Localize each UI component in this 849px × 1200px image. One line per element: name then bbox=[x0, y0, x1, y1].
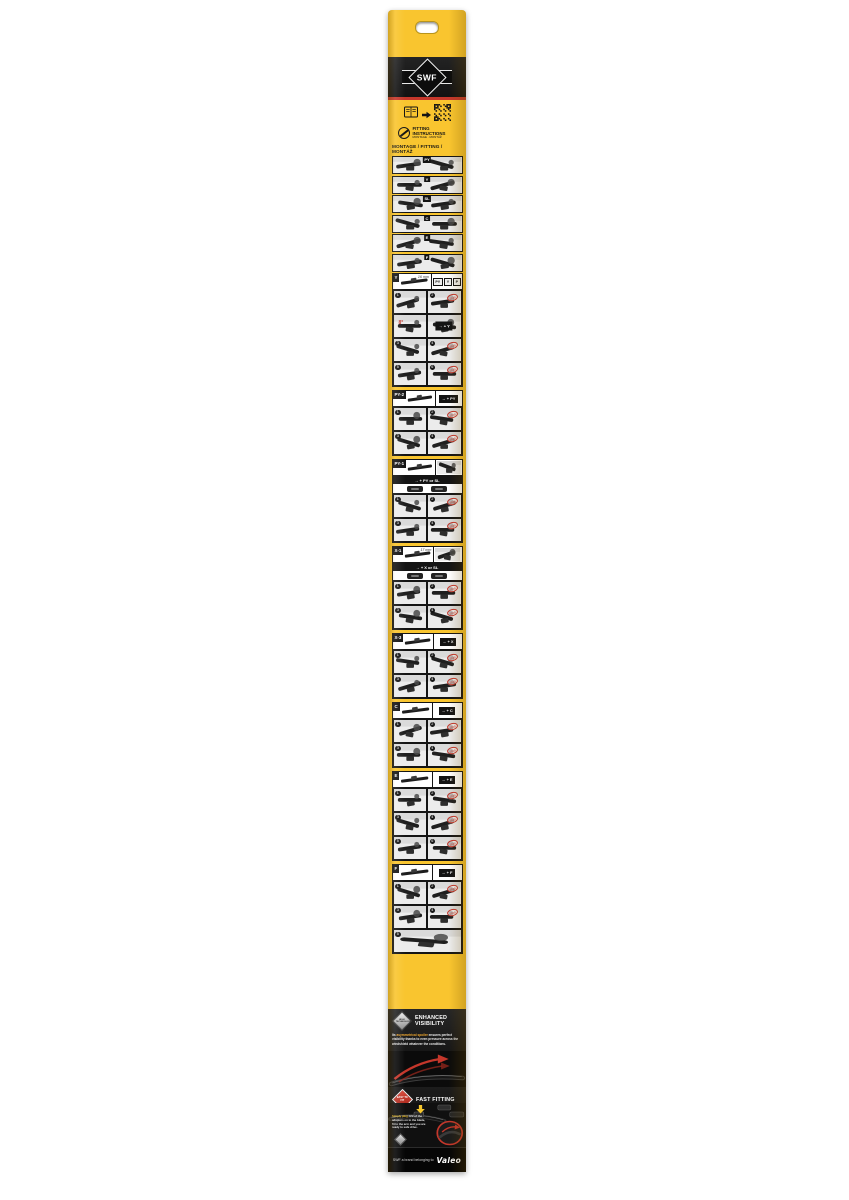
hang-hole bbox=[415, 21, 439, 34]
adapter-type-label: Y bbox=[424, 177, 430, 183]
fitting-instructions-sub: MONTAGE · MONTÁŽ bbox=[413, 136, 461, 139]
section-code-label: PY-2 bbox=[393, 391, 407, 399]
steps-grid: 12click34click bbox=[393, 719, 462, 767]
arrow-right-icon bbox=[422, 106, 431, 124]
section-header: X-117 mm bbox=[393, 547, 462, 563]
instruction-section-C: C→ + C12click34click bbox=[392, 702, 463, 768]
measure-label: 17 mm bbox=[420, 548, 431, 552]
step-number: 1 bbox=[395, 497, 401, 503]
spoiler-blade-illustration bbox=[388, 1051, 466, 1087]
fast-fitting-title: FAST FITTING bbox=[416, 1097, 455, 1103]
adapter-photo bbox=[427, 157, 462, 173]
adapter-photo bbox=[431, 486, 447, 492]
steps-grid: 12click34click bbox=[393, 581, 462, 629]
steps-grid: 12click34click56click bbox=[393, 788, 462, 860]
step-cell: 3 bbox=[393, 812, 428, 836]
qr-instructions-block: FITTING INSTRUCTIONS MONTAGE · MONTÁŽ bbox=[388, 100, 466, 141]
step-number: 3 bbox=[395, 815, 401, 821]
body-highlight: asymmetrical spoiler bbox=[397, 1033, 428, 1037]
step-cell: 1 bbox=[393, 719, 428, 743]
steps-grid: 12click34click bbox=[393, 494, 462, 542]
steps-grid: 12click34click bbox=[393, 407, 462, 455]
section-header: PY-2→ + PY bbox=[393, 391, 462, 407]
step-cell: 2click bbox=[427, 788, 462, 812]
fast-fitting-panel: EASY TO FIT FAST FITTING bbox=[388, 1087, 466, 1147]
valeo-logo: Valeo bbox=[437, 1156, 462, 1165]
step-cell: 2click bbox=[427, 650, 462, 674]
instruction-section-X-3: X-3→ + X12click34click bbox=[392, 633, 463, 699]
enhanced-visibility-strip: HIGH TECHNOLOGY ENHANCED VISIBILITY bbox=[388, 1009, 466, 1032]
compare-chip: P bbox=[453, 278, 460, 286]
step-cell: 1 bbox=[393, 881, 428, 905]
section-header-right bbox=[433, 547, 461, 562]
fitting-instructions-row: FITTING INSTRUCTIONS MONTAGE · MONTÁŽ bbox=[392, 124, 462, 139]
adapter-type-label: PY bbox=[423, 157, 431, 163]
adapter-formula: → + X bbox=[440, 638, 456, 646]
step-number: 1 bbox=[395, 791, 401, 797]
step-cell: 2click bbox=[427, 494, 462, 518]
adapter-formula: → + F bbox=[439, 869, 455, 877]
section-header-right: → + PY bbox=[435, 391, 462, 406]
step-cell: → + Y bbox=[427, 314, 462, 338]
adapter-formula: → + Y bbox=[436, 322, 453, 331]
overview-row: F bbox=[392, 254, 463, 272]
step-cell: 1 bbox=[393, 494, 428, 518]
step-number: 1 bbox=[395, 293, 401, 299]
steps-grid: 12click8°→ + Y34click56click bbox=[393, 290, 462, 386]
step-cell: 2click bbox=[427, 290, 462, 314]
adapter-photo bbox=[407, 573, 423, 579]
compare-chip: PY bbox=[433, 278, 443, 286]
arm-photo bbox=[393, 235, 428, 251]
footer-bar: SWF a brand belonging to Valeo bbox=[388, 1147, 466, 1172]
blade-photo bbox=[406, 460, 435, 475]
compare-chip: Y bbox=[444, 278, 451, 286]
adapter-photo bbox=[427, 235, 462, 251]
enhanced-visibility-panel: HIGH TECHNOLOGY ENHANCED VISIBILITY Its … bbox=[388, 1009, 466, 1087]
fast-fitting-body: Simply plug one of the adapters on to th… bbox=[392, 1115, 428, 1130]
step-cell: 4click bbox=[427, 338, 462, 362]
arm-photo bbox=[393, 157, 428, 173]
step-cell: 8° bbox=[393, 314, 428, 338]
blade-photo: 16 mm bbox=[399, 274, 430, 289]
section-header-right bbox=[435, 460, 462, 475]
adapter-type-label: F bbox=[424, 255, 429, 261]
instruction-section-F: F→ + F12click34click5 bbox=[392, 864, 463, 954]
section-code-label: E bbox=[393, 772, 400, 780]
section-header: C→ + C bbox=[393, 703, 462, 719]
overview-row: C bbox=[392, 215, 463, 233]
adapter-type-label: E bbox=[424, 235, 430, 241]
instruction-section-PY-1: PY-1→ + PY or SL12click34click bbox=[392, 459, 463, 543]
step-number: 3 bbox=[395, 521, 401, 527]
step-cell: 5 bbox=[393, 836, 428, 860]
adapter-type-label: SL bbox=[423, 196, 431, 202]
arm-photo bbox=[393, 255, 428, 271]
step-number: 1 bbox=[395, 653, 401, 659]
adapter-photo bbox=[427, 196, 462, 212]
overview-row: Y bbox=[392, 176, 463, 194]
steps-grid: 12click34click bbox=[393, 650, 462, 698]
qr-code-icon bbox=[434, 104, 451, 126]
arm-photo bbox=[393, 196, 428, 212]
step-number: 1 bbox=[395, 722, 401, 728]
step-cell: 1 bbox=[393, 581, 428, 605]
step-cell: 2click bbox=[427, 719, 462, 743]
step-cell: 1 bbox=[393, 290, 428, 314]
blade-photo bbox=[406, 391, 435, 406]
instruction-sections: Y16 mmPYYP12click8°→ + Y34click56clickPY… bbox=[392, 273, 463, 957]
step-cell: 6click bbox=[427, 836, 462, 860]
section-header-right: PYYP bbox=[431, 274, 462, 289]
step-number: 5 bbox=[395, 365, 401, 371]
instruction-section-Y: Y16 mmPYYP12click8°→ + Y34click56click bbox=[392, 273, 463, 387]
step-cell: 5 bbox=[393, 362, 428, 386]
instruction-section-E: E→ + E12click34click56click bbox=[392, 771, 463, 861]
blade-photo: 17 mm bbox=[403, 547, 433, 562]
adapter-formula: → + E bbox=[439, 776, 455, 784]
overview-row: SL bbox=[392, 195, 463, 213]
adapter-photo bbox=[431, 573, 447, 579]
section-header-right: → + C bbox=[432, 703, 462, 718]
step-number: 3 bbox=[395, 608, 401, 614]
blade-photo bbox=[399, 865, 431, 880]
section-code-label: PY-1 bbox=[393, 460, 407, 468]
step-number: 1 bbox=[395, 410, 401, 416]
step-cell: 1 bbox=[393, 407, 428, 431]
overview-row: E bbox=[392, 234, 463, 252]
montage-heading: MONTAGE / FITTING / MONTÁŽ bbox=[388, 141, 466, 156]
section-header: PY-1 bbox=[393, 460, 462, 476]
bottom-feature-block: HIGH TECHNOLOGY ENHANCED VISIBILITY Its … bbox=[388, 1009, 466, 1172]
step-cell: 3 bbox=[393, 518, 428, 542]
booklet-icon bbox=[404, 106, 419, 124]
adapter-formula: → + PY bbox=[439, 395, 458, 403]
arm-photo bbox=[393, 216, 428, 232]
step-number: 3 bbox=[395, 434, 401, 440]
step-number: 5 bbox=[395, 932, 401, 938]
step-cell: 4click bbox=[427, 605, 462, 629]
section-header-right: → + E bbox=[432, 772, 462, 787]
angle-label: 8° bbox=[399, 320, 404, 326]
step-cell: 2click bbox=[427, 881, 462, 905]
footer-text: SWF a brand belonging to bbox=[393, 1158, 434, 1162]
adapter-photo bbox=[427, 177, 462, 193]
adapter-formula-strip: → + X or SL bbox=[393, 563, 462, 571]
blade-photo bbox=[400, 703, 432, 718]
section-header: F→ + F bbox=[393, 865, 462, 881]
step-cell: 5 bbox=[393, 929, 462, 953]
section-code-label: Y bbox=[393, 274, 400, 282]
brand-text: SWF bbox=[417, 72, 437, 82]
step-cell: 4click bbox=[427, 905, 462, 929]
step-cell: 3 bbox=[393, 674, 428, 698]
step-cell: 3 bbox=[393, 905, 428, 929]
product-package: SWF bbox=[388, 10, 466, 1172]
adapter-formula-strip: → + PY or SL bbox=[393, 476, 462, 484]
steps-grid: 12click34click5 bbox=[393, 881, 462, 953]
enhanced-visibility-title: ENHANCED VISIBILITY bbox=[415, 1015, 463, 1027]
step-cell: 6click bbox=[427, 362, 462, 386]
adapter-options-row bbox=[393, 484, 462, 494]
step-cell: 3 bbox=[393, 338, 428, 362]
step-cell: 4click bbox=[427, 743, 462, 767]
step-number: 3 bbox=[395, 908, 401, 914]
step-number: 3 bbox=[395, 677, 401, 683]
step-cell: 1 bbox=[393, 788, 428, 812]
step-cell: 3 bbox=[393, 743, 428, 767]
adapter-overview-table: PYYSLCEF bbox=[392, 156, 463, 273]
adapter-type-label: C bbox=[424, 216, 430, 222]
step-cell: 4click bbox=[427, 674, 462, 698]
step-number: 1 bbox=[395, 584, 401, 590]
section-code-label: F bbox=[393, 865, 400, 873]
step-number: 3 bbox=[395, 341, 401, 347]
section-code-label: X-1 bbox=[393, 547, 404, 555]
section-code-label: C bbox=[393, 703, 400, 711]
step-number: 3 bbox=[395, 746, 401, 752]
blade-photo bbox=[403, 634, 433, 649]
hang-tab bbox=[388, 10, 466, 57]
high-technology-badge-icon: HIGH TECHNOLOGY bbox=[392, 1011, 412, 1031]
brand-header-band: SWF bbox=[388, 57, 466, 97]
section-header: E→ + E bbox=[393, 772, 462, 788]
step-cell: 1 bbox=[393, 650, 428, 674]
wiper-blade-circle-icon bbox=[398, 127, 410, 139]
section-header: X-3→ + X bbox=[393, 634, 462, 650]
step-cell: 2click bbox=[427, 407, 462, 431]
section-header: Y16 mmPYYP bbox=[393, 274, 462, 290]
step-cell: 4click bbox=[427, 431, 462, 455]
adapter-formula: → + C bbox=[439, 707, 455, 715]
pictogram-row bbox=[392, 105, 462, 124]
section-header-right: → + X bbox=[433, 634, 461, 649]
blade-photo bbox=[399, 772, 431, 787]
adapter-photo bbox=[427, 216, 462, 232]
step-cell: 2click bbox=[427, 581, 462, 605]
enhanced-visibility-body: Its asymmetrical spoiler ensures perfect… bbox=[388, 1032, 466, 1048]
adapter-photo bbox=[407, 486, 423, 492]
step-number: 1 bbox=[395, 884, 401, 890]
measure-label: 16 mm bbox=[418, 275, 429, 279]
adapter-options-row bbox=[393, 571, 462, 581]
instruction-section-PY-2: PY-2→ + PY12click34click bbox=[392, 390, 463, 456]
step-cell: 4click bbox=[427, 812, 462, 836]
overview-row: PY bbox=[392, 156, 463, 174]
section-code-label: X-3 bbox=[393, 634, 404, 642]
step-cell: 3 bbox=[393, 605, 428, 629]
step-cell: 4click bbox=[427, 518, 462, 542]
adapter-photo bbox=[427, 255, 462, 271]
step-cell: 3 bbox=[393, 431, 428, 455]
arm-photo bbox=[393, 177, 428, 193]
step-number: 5 bbox=[395, 839, 401, 845]
swf-diamond-logo: SWF bbox=[408, 58, 446, 96]
section-header-right: → + F bbox=[432, 865, 462, 880]
instruction-section-X-1: X-117 mm→ + X or SL12click34click bbox=[392, 546, 463, 630]
